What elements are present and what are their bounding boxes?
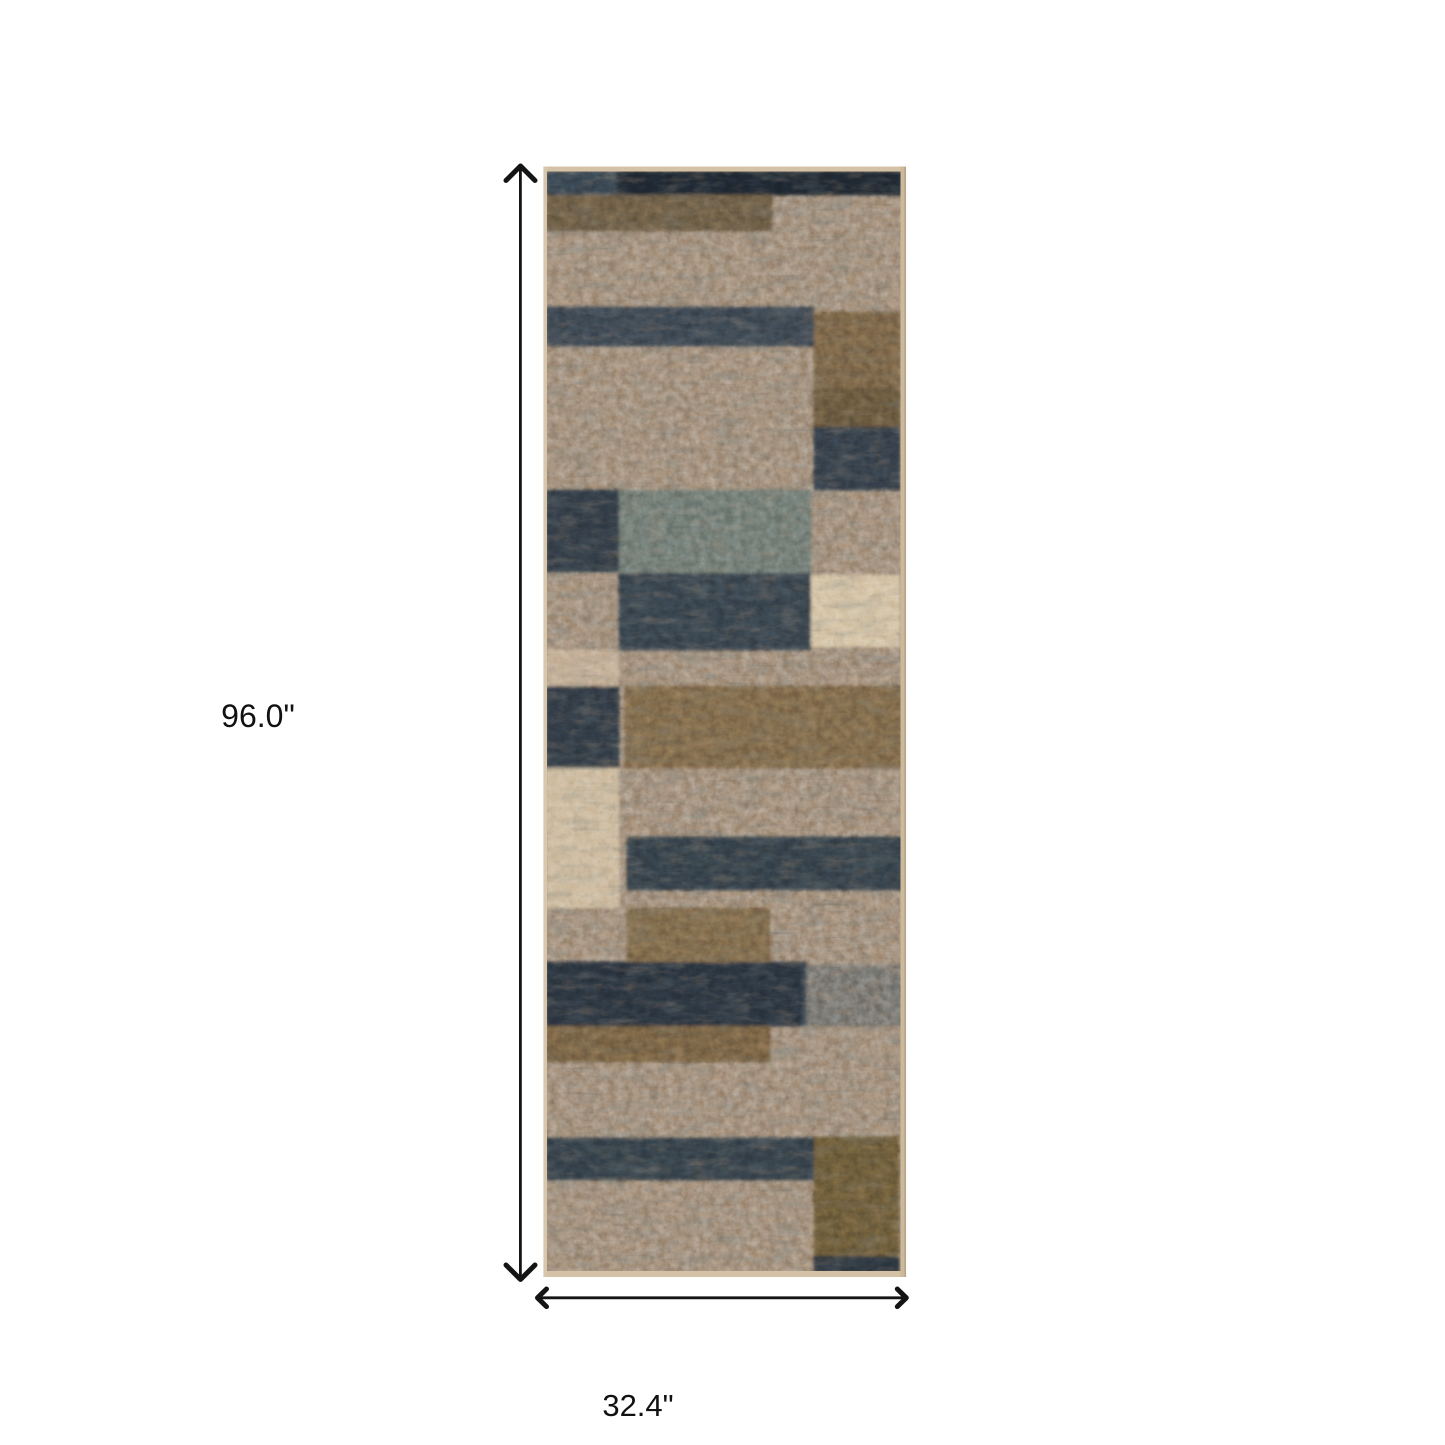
svg-text:32.4": 32.4" bbox=[602, 1388, 673, 1423]
svg-text:96.0": 96.0" bbox=[221, 698, 295, 734]
